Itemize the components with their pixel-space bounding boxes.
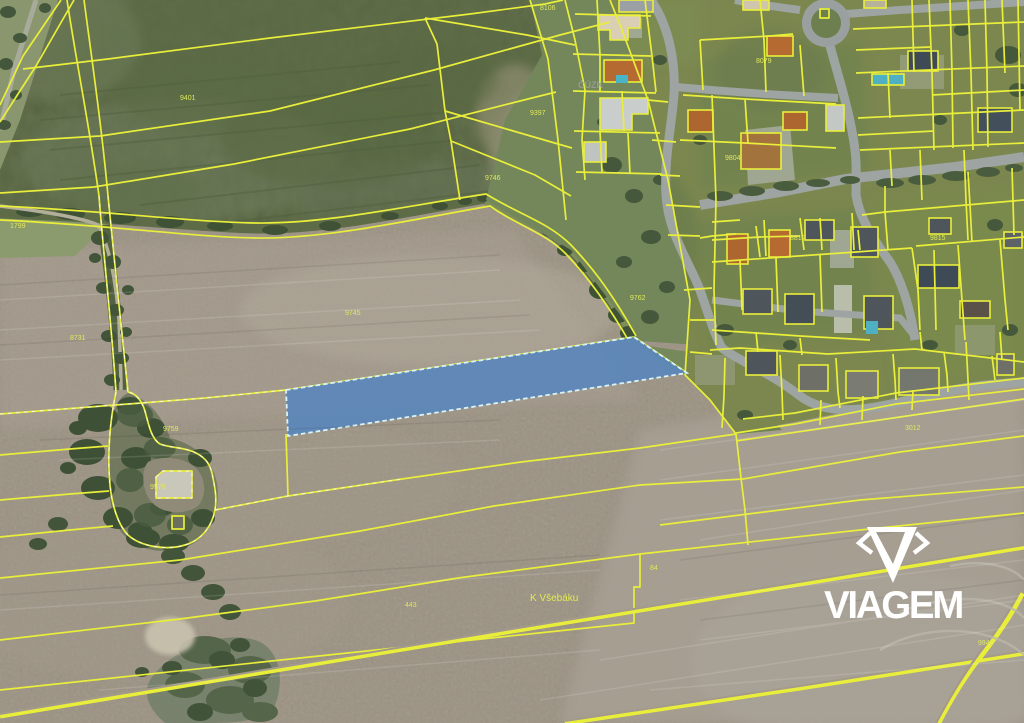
svg-text:9804: 9804: [725, 155, 741, 162]
svg-text:9576: 9576: [150, 484, 166, 491]
svg-text:1799: 1799: [10, 223, 26, 230]
svg-text:K Všebáku: K Všebáku: [530, 593, 578, 604]
svg-text:9401: 9401: [180, 95, 196, 102]
svg-text:9759: 9759: [163, 426, 179, 433]
svg-text:9815: 9815: [930, 235, 946, 242]
svg-text:9397: 9397: [530, 110, 546, 117]
svg-text:8812: 8812: [790, 235, 806, 242]
svg-text:84: 84: [650, 565, 658, 572]
svg-text:8731: 8731: [70, 335, 86, 342]
svg-text:443: 443: [405, 602, 417, 609]
svg-text:9762: 9762: [630, 295, 646, 302]
svg-text:9943: 9943: [978, 640, 994, 647]
svg-text:9745: 9745: [345, 310, 361, 317]
svg-text:ČÚZK: ČÚZK: [578, 79, 603, 90]
svg-text:8079: 8079: [756, 58, 772, 65]
svg-text:VIAGEM: VIAGEM: [824, 584, 962, 627]
svg-text:8106: 8106: [540, 5, 556, 12]
svg-text:3012: 3012: [905, 425, 921, 432]
svg-text:9746: 9746: [485, 175, 501, 182]
